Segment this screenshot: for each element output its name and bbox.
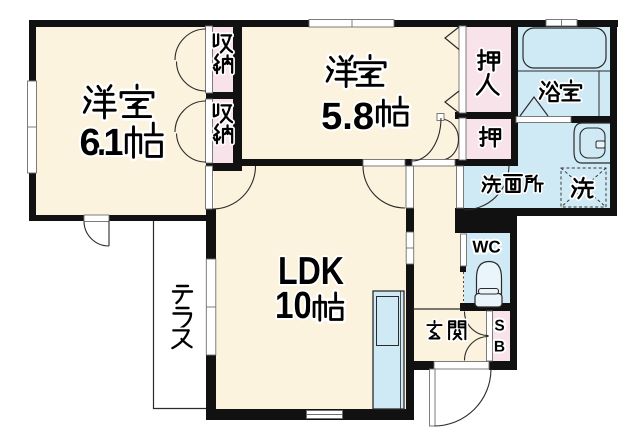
svg-text:WC: WC [472, 238, 500, 257]
svg-text:S: S [494, 318, 504, 335]
svg-text:5.8: 5.8 [321, 96, 374, 138]
svg-text:B: B [494, 339, 505, 356]
svg-text:10: 10 [275, 285, 312, 327]
svg-text:6.1: 6.1 [80, 122, 125, 164]
